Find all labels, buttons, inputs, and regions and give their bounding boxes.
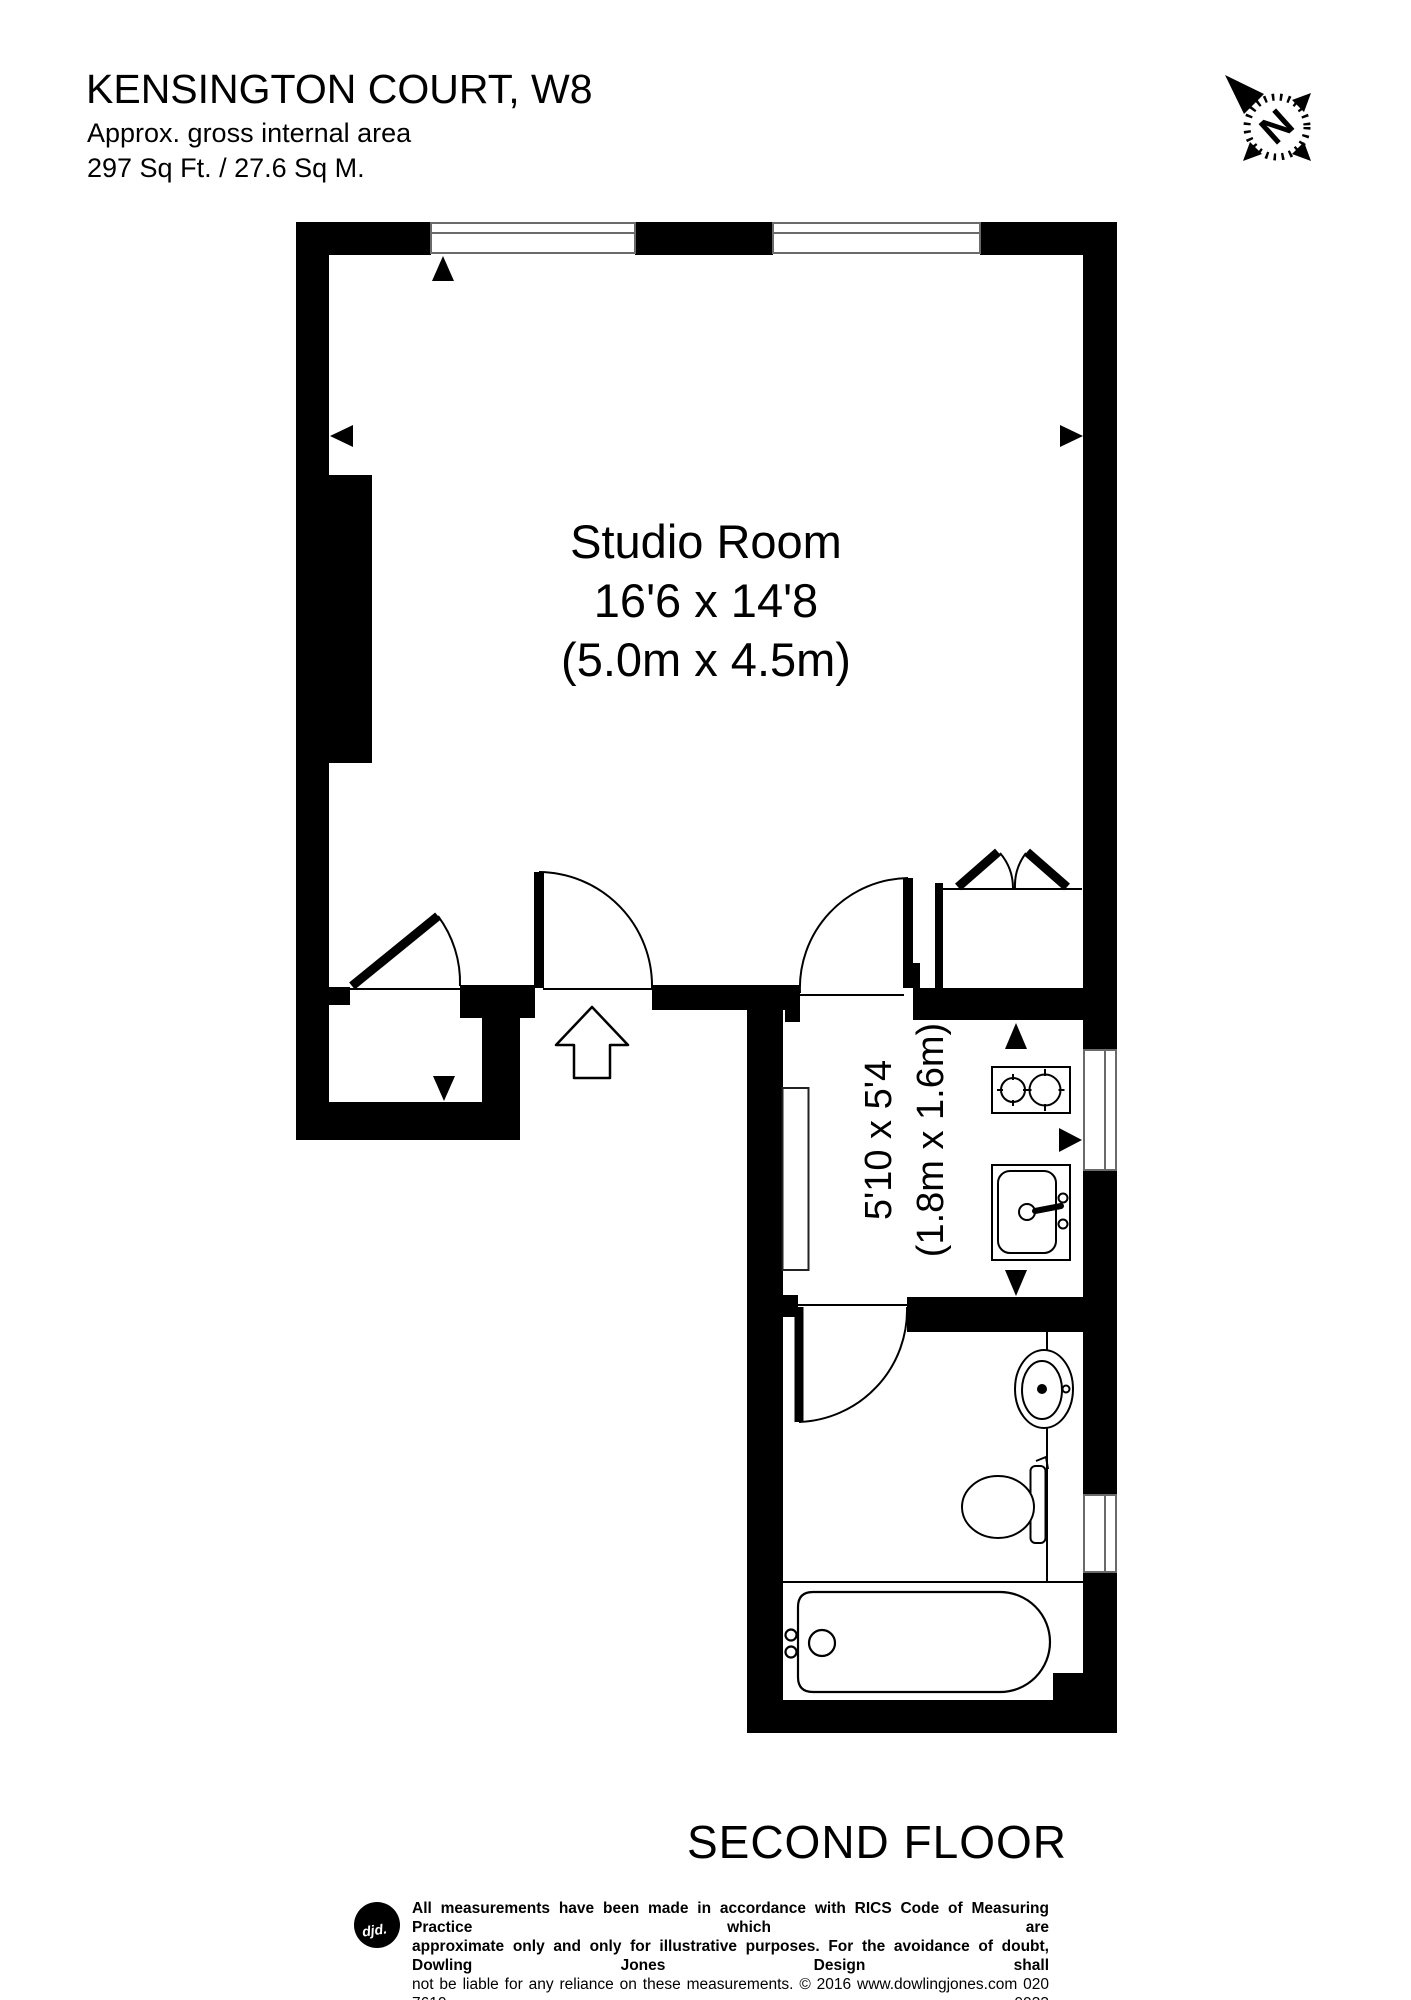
wall-top-mid (635, 222, 773, 255)
cupboard-swing-right (1015, 853, 1026, 888)
kitchen-door-swing (800, 878, 908, 993)
cupboard-leaf-left (958, 852, 998, 887)
wall-smallroom-jamb-left (329, 987, 350, 1005)
studio-depth-arrow-down (433, 1076, 455, 1101)
studio-width-arrow-left (330, 425, 353, 447)
disclaimer-line-1: All measurements have been made in accor… (412, 1899, 1049, 1937)
studio-room-name: Studio Room (410, 512, 1002, 571)
page-area-value: 297 Sq Ft. / 27.6 Sq M. (87, 153, 365, 184)
kitchen-depth-arrow-down (1005, 1270, 1027, 1296)
kitchen-label: 5'10 x 5'4 (1.8m x 1.6m) (853, 990, 957, 1290)
floorplan-page: N KENSINGTON COURT, W8 Approx. gross int… (0, 0, 1411, 2000)
djd-logo: djd. (354, 1902, 400, 1948)
window-top-2 (773, 223, 980, 253)
compass-north-arrow (1225, 75, 1264, 114)
smallroom-door (350, 916, 460, 989)
disclaimer-line-2: approximate only and only for illustrati… (412, 1937, 1049, 1975)
wall-smallroom-right (482, 1005, 520, 1140)
kitchen-width-arrow-right (1059, 1128, 1082, 1152)
studio-width-arrow-right (1060, 425, 1083, 447)
kitchen-counter (783, 1088, 809, 1270)
cupboard-leaf-right (1027, 852, 1067, 887)
cupboard-doors (943, 852, 1082, 889)
bathtub (786, 1592, 1051, 1692)
entrance-door (539, 872, 652, 989)
window-bathroom (1084, 1495, 1116, 1572)
entrance-direction-arrow (556, 1007, 628, 1078)
basin-drain (1038, 1385, 1046, 1393)
compass-icon: N (1225, 75, 1311, 161)
wall-wing-bottom (747, 1700, 1117, 1733)
smallroom-door-swing (438, 916, 460, 986)
kitchen-depth-arrow-up (1005, 1023, 1027, 1049)
wall-cupboard-left (935, 883, 943, 988)
wall-right-upper (1083, 222, 1117, 1050)
wall-wing-left (747, 1005, 783, 1707)
compass-sw-arrow (1243, 142, 1262, 161)
wall-kitchen-bath-divider (907, 1297, 1083, 1332)
toilet-bowl (962, 1476, 1034, 1538)
hob (992, 1067, 1070, 1113)
studio-depth-arrow-up (432, 256, 454, 281)
djd-logo-text: djd. (361, 1920, 388, 1939)
toilet (962, 1457, 1048, 1543)
disclaimer-text: All measurements have been made in accor… (412, 1899, 1049, 2000)
compass-ne-arrow (1292, 93, 1311, 112)
studio-room-dims-imperial: 16'6 x 14'8 (410, 571, 1002, 630)
compass-north-label: N (1252, 101, 1303, 153)
compass-se-arrow (1292, 142, 1311, 161)
page-title: KENSINGTON COURT, W8 (86, 66, 593, 113)
wall-between-doors (460, 985, 535, 1018)
bathroom-door (798, 1305, 907, 1422)
wall-left (296, 222, 329, 1140)
wall-corridor-step (785, 1007, 800, 1022)
cupboard-swing-left (1000, 853, 1013, 888)
wall-corner-step (1053, 1673, 1083, 1703)
page-subtitle: Approx. gross internal area (87, 118, 411, 149)
kitchen-door (800, 878, 908, 995)
wall-right-mid (1083, 1170, 1117, 1495)
window-top-1 (431, 223, 635, 253)
studio-room-label: Studio Room 16'6 x 14'8 (5.0m x 4.5m) (410, 512, 1002, 689)
chimney-breast (329, 475, 372, 763)
window-kitchen (1084, 1050, 1116, 1170)
floorplan-drawing: N (0, 0, 1411, 2000)
kitchen-dims-imperial: 5'10 x 5'4 (853, 990, 905, 1290)
kitchen-sink (992, 1165, 1070, 1260)
sink-basin (998, 1171, 1056, 1253)
studio-room-dims-metric: (5.0m x 4.5m) (410, 630, 1002, 689)
bathtub-tap-bottom (786, 1647, 797, 1658)
disclaimer-line-3: not be liable for any reliance on these … (412, 1975, 1049, 2000)
wall-corridor-right (652, 985, 800, 1010)
bathroom-basin (1015, 1350, 1073, 1428)
kitchen-dims-metric: (1.8m x 1.6m) (905, 990, 957, 1290)
smallroom-door-leaf (352, 916, 438, 986)
bathtub-tap-top (786, 1630, 797, 1641)
entrance-door-swing (539, 872, 652, 988)
bathroom-door-swing (799, 1307, 907, 1422)
floor-label: SECOND FLOOR (627, 1815, 1127, 1869)
